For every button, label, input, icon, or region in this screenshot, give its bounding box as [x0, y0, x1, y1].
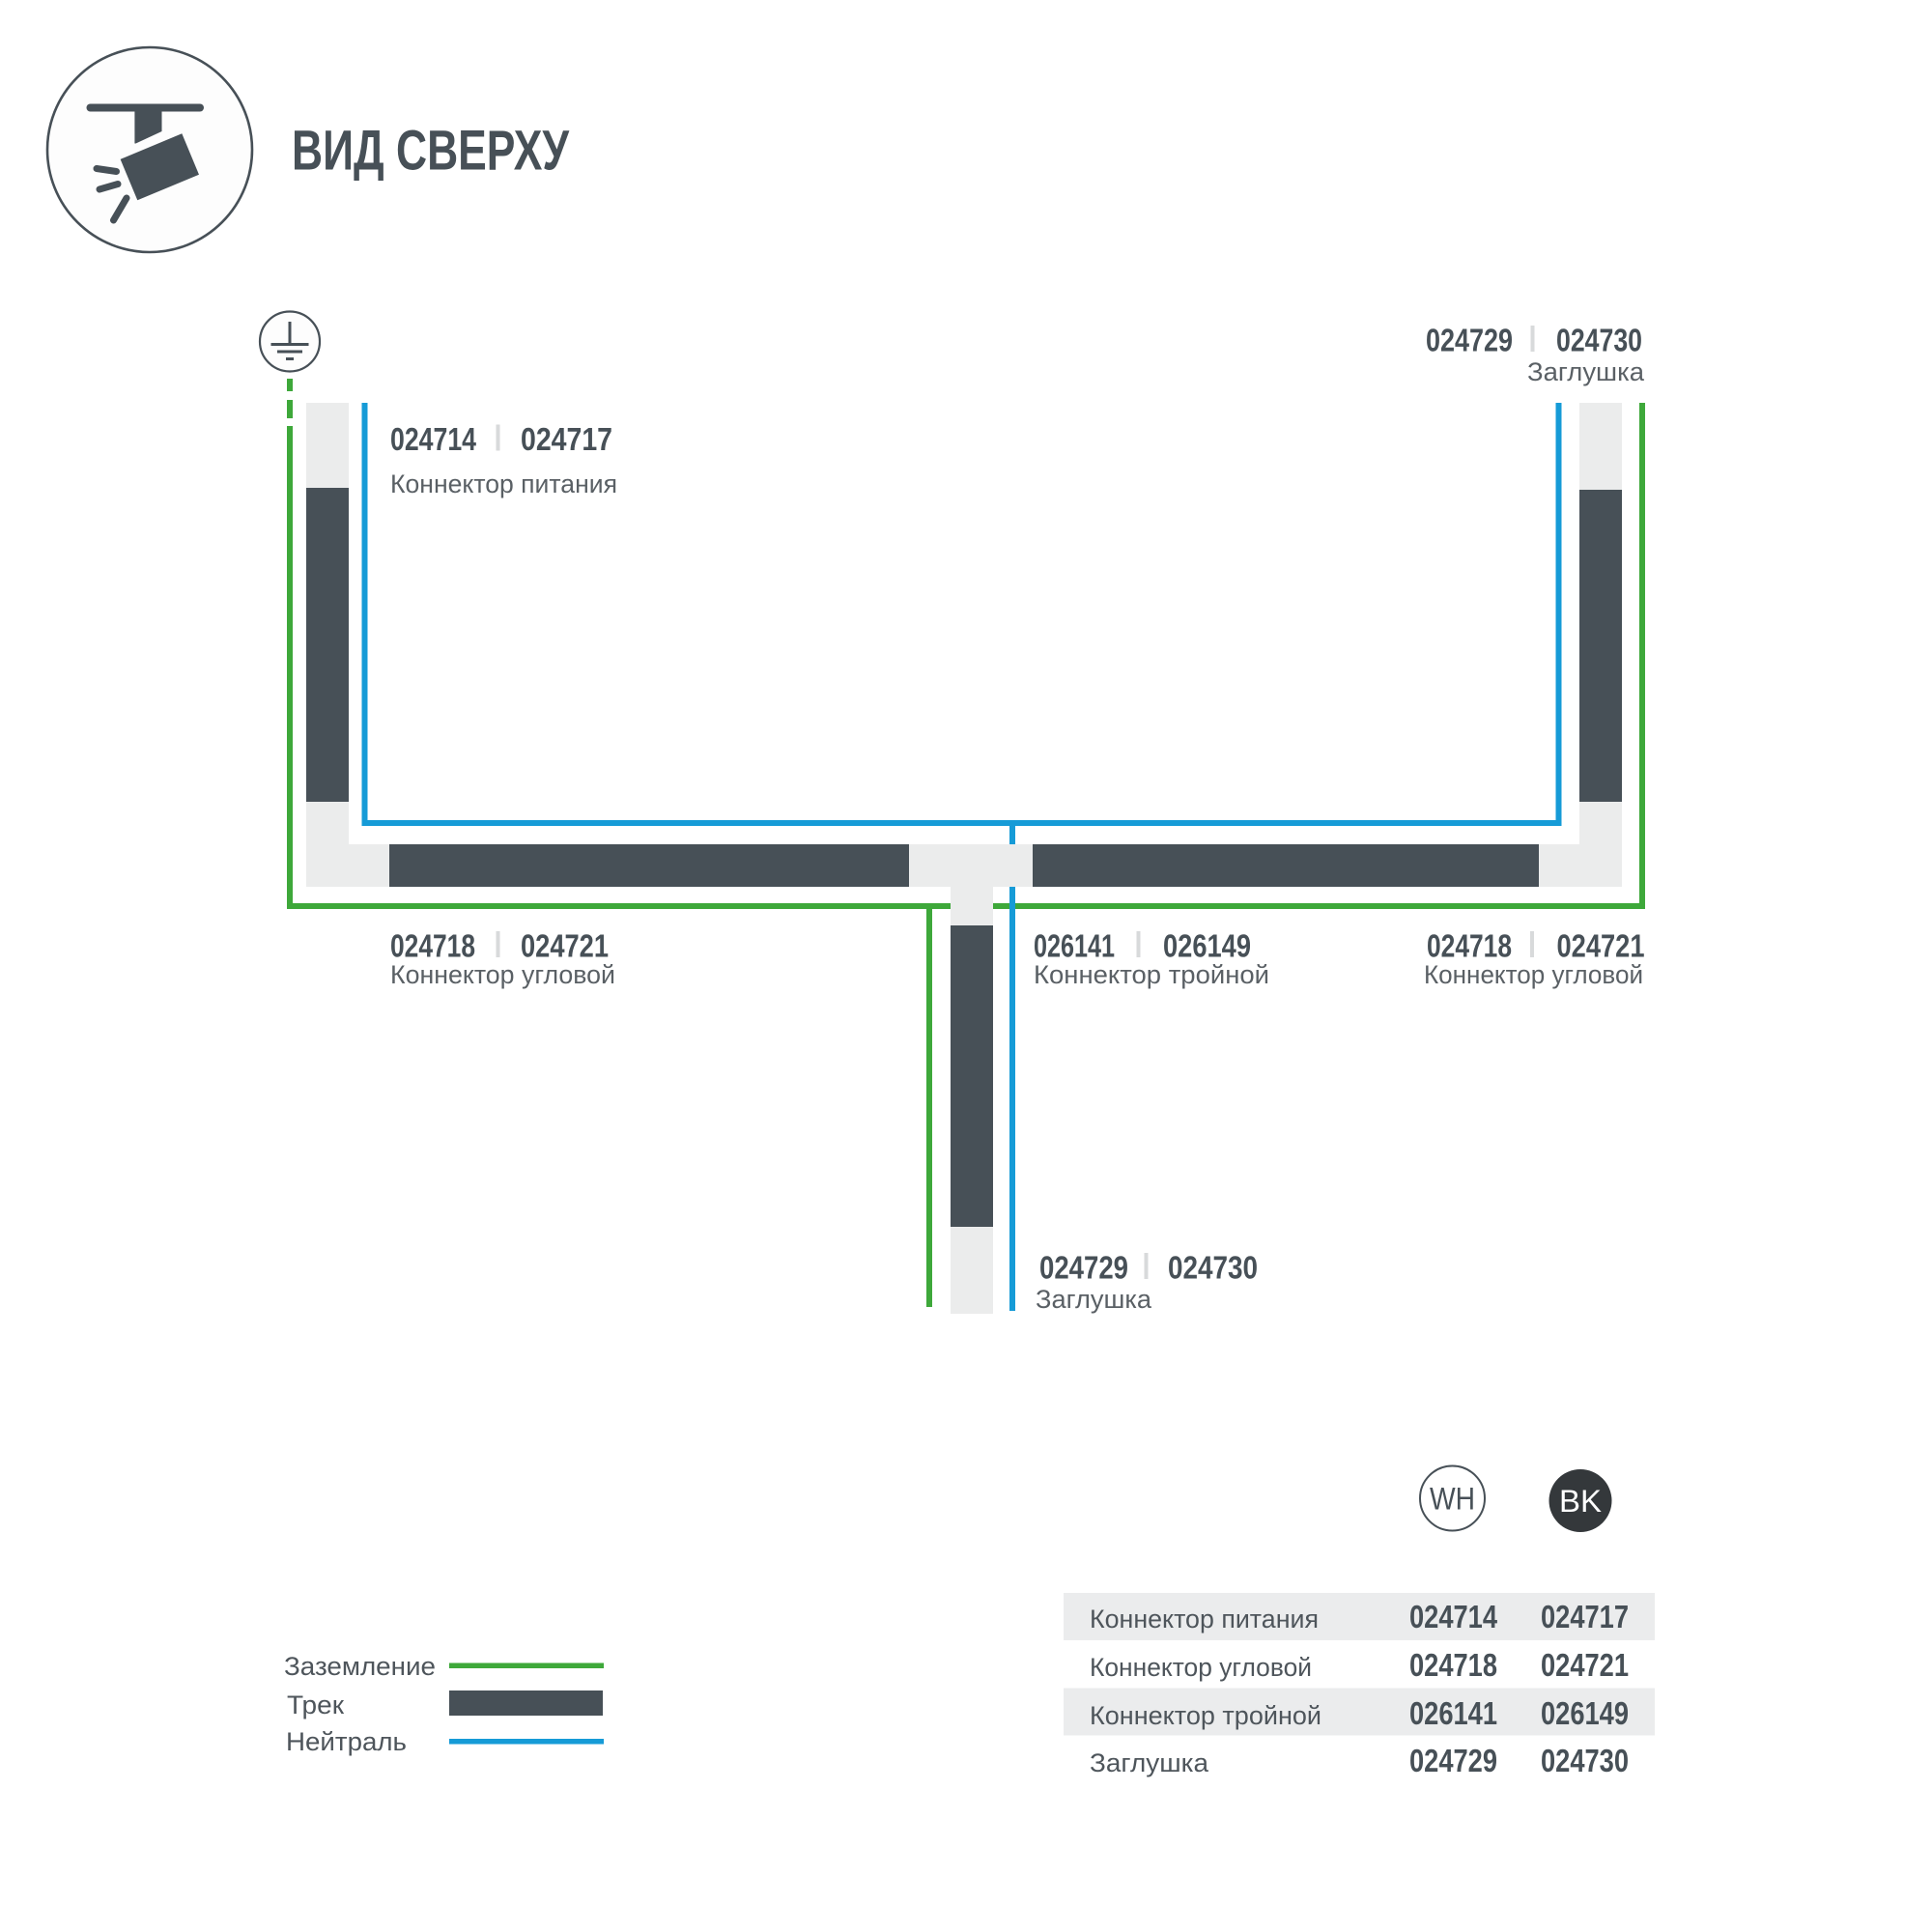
svg-text:024718: 024718	[1427, 928, 1512, 964]
svg-text:024717: 024717	[521, 421, 612, 457]
svg-text:024730: 024730	[1541, 1743, 1629, 1778]
svg-text:024730: 024730	[1556, 323, 1642, 358]
svg-text:024717: 024717	[1541, 1599, 1629, 1634]
svg-text:024730: 024730	[1168, 1250, 1258, 1286]
svg-text:024714: 024714	[390, 421, 477, 457]
svg-text:024729: 024729	[1426, 323, 1513, 358]
svg-text:026149: 026149	[1541, 1695, 1629, 1731]
svg-text:Коннектор тройной: Коннектор тройной	[1034, 960, 1269, 989]
svg-text:024718: 024718	[390, 928, 475, 964]
svg-text:026149: 026149	[1163, 928, 1251, 964]
svg-text:024721: 024721	[1557, 928, 1645, 964]
svg-text:Коннектор угловой: Коннектор угловой	[1424, 960, 1643, 989]
svg-text:Заглушка: Заглушка	[1090, 1748, 1209, 1777]
svg-text:Заглушка: Заглушка	[1036, 1285, 1152, 1314]
svg-text:Заглушка: Заглушка	[1527, 357, 1645, 386]
svg-text:BK: BK	[1559, 1484, 1602, 1519]
svg-text:Коннектор питания: Коннектор питания	[390, 469, 617, 498]
svg-text:Коннектор угловой: Коннектор угловой	[1090, 1653, 1312, 1682]
svg-text:Коннектор тройной: Коннектор тройной	[1090, 1701, 1321, 1730]
svg-text:024714: 024714	[1409, 1599, 1498, 1634]
svg-text:024729: 024729	[1039, 1250, 1128, 1286]
svg-text:024718: 024718	[1409, 1647, 1497, 1683]
svg-text:ВИД СВЕРХУ: ВИД СВЕРХУ	[292, 120, 570, 183]
svg-text:024721: 024721	[521, 928, 609, 964]
svg-text:Трек: Трек	[287, 1690, 344, 1719]
svg-text:Коннектор угловой: Коннектор угловой	[390, 960, 615, 989]
svg-text:024729: 024729	[1409, 1743, 1497, 1778]
svg-text:WH: WH	[1430, 1482, 1475, 1517]
svg-text:Заземление: Заземление	[284, 1652, 436, 1681]
svg-text:026141: 026141	[1034, 928, 1115, 964]
svg-text:024721: 024721	[1541, 1647, 1629, 1683]
svg-text:Нейтраль: Нейтраль	[286, 1727, 407, 1756]
svg-text:Коннектор питания: Коннектор питания	[1090, 1605, 1319, 1634]
svg-text:026141: 026141	[1409, 1695, 1497, 1731]
